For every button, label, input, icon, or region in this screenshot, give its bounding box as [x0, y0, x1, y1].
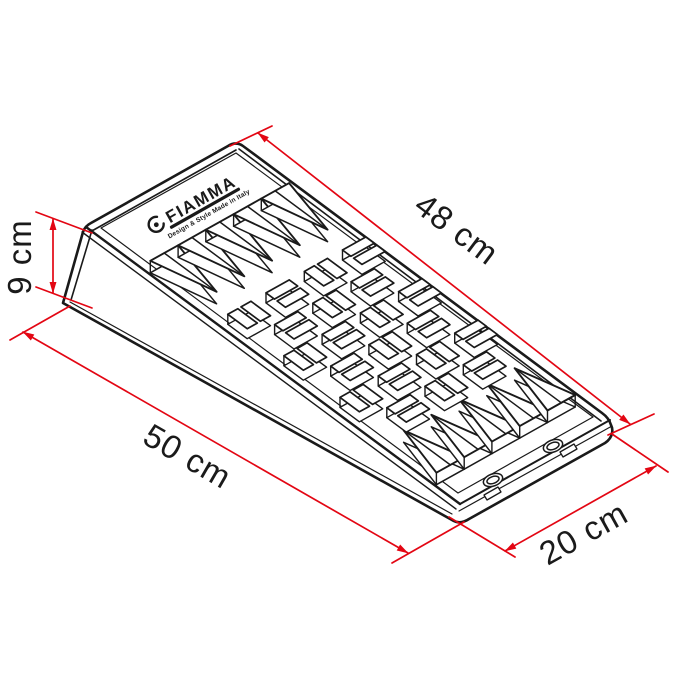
label-height: 9 cm: [1, 219, 38, 295]
label-base-length: 50 cm: [137, 416, 238, 495]
ramp-body: [63, 144, 612, 523]
technical-drawing-page: FIAMMA Design & Style Made in Italy 48 c…: [0, 0, 700, 700]
leveling-ramp-dimension-drawing: FIAMMA Design & Style Made in Italy 48 c…: [0, 0, 700, 700]
label-width: 20 cm: [533, 494, 634, 572]
label-top-length: 48 cm: [408, 185, 506, 272]
